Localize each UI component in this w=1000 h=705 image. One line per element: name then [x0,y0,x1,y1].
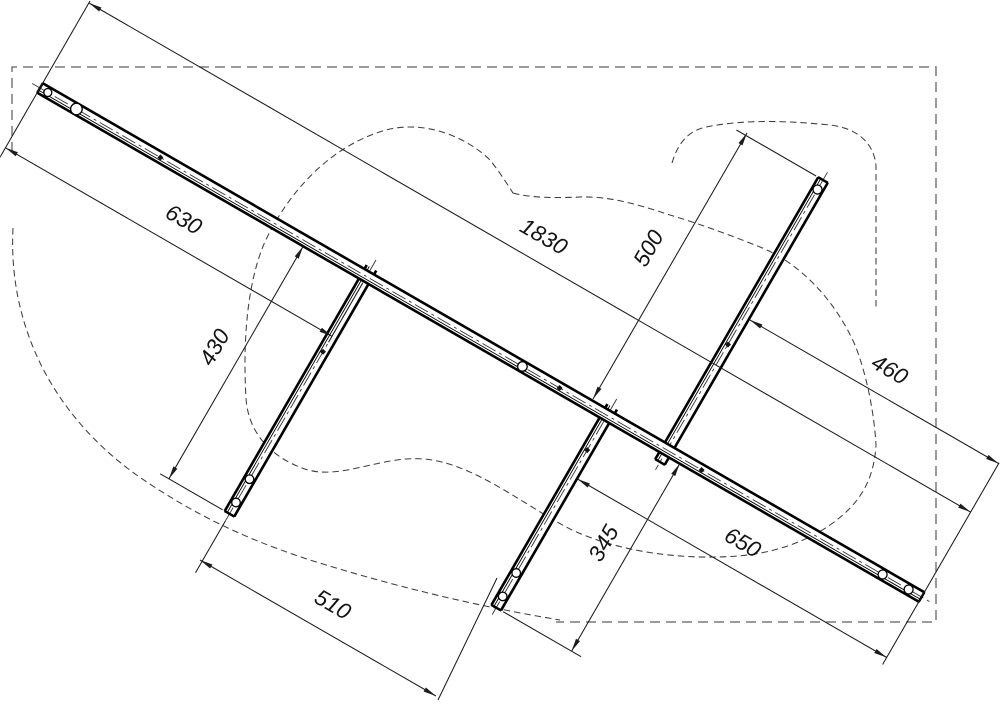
dim-label-d460: 460 [867,349,912,390]
cross-rail-2-edge [501,410,617,611]
cross-rail-1-edge [234,271,376,517]
extension-line [0,1,90,157]
dim-label-d345: 345 [583,520,624,565]
mounting-hole [232,498,241,507]
main-rail-edge [43,83,925,592]
mounting-hole [245,475,254,484]
template-top-right-outline [672,122,876,311]
dimension-arrowhead [578,479,590,487]
dimension-line-d460 [750,320,999,464]
dimension-d460: 460 [750,320,999,464]
dimension-arrowhead [986,455,998,463]
extension-line [438,578,497,700]
main-rail [32,83,929,602]
dimension-d345: 345 [572,464,680,652]
dimension-arrowhead [750,320,762,328]
dimension-arrowhead [295,246,303,258]
dimension-d630: 630 [6,148,333,336]
mounting-hole [518,362,528,372]
dimension-arrowhead [874,649,886,657]
dimension-line-d630 [6,148,333,336]
cross-rail-3-edge [665,183,828,465]
main-rail-edge [37,93,919,602]
mounting-hole [71,103,83,115]
dimension-arrowhead [572,639,580,651]
dimension-line-d345 [572,464,680,652]
dimension-arrowhead [593,387,602,399]
dimension-arrowhead [200,560,212,568]
dim-label-d650: 650 [720,522,765,563]
dimension-d1830: 1830 [89,3,971,512]
mounting-hole [904,585,913,594]
mounting-hole [44,89,52,97]
main-rail-inner-line [39,90,921,599]
extension-line [503,612,581,657]
cross-rail-3-inner-line [658,179,821,461]
dim-label-d500: 500 [628,225,669,270]
technical-drawing: 1830630460650510500430345 [0,0,1000,705]
dimension-arrowhead [169,466,177,478]
mounting-hole [498,592,507,601]
dimension-d650: 650 [578,479,887,658]
dimension-arrowhead [958,504,970,512]
cross-rail-3-edge [655,177,818,459]
dimension-arrowhead [424,688,436,696]
mounting-hole [512,569,521,578]
dim-label-d630: 630 [161,199,206,240]
cross-rail-2 [491,399,617,615]
dim-label-d430: 430 [194,324,235,369]
cross-rail-3 [655,172,828,470]
dim-label-d510: 510 [310,584,355,625]
cross-rail-2-centerline [492,399,617,615]
extension-line [883,463,1000,665]
cross-rail-2-edge [491,404,607,605]
mounting-hole [878,570,887,579]
cross-rail-1-edge [225,265,367,511]
dim-label-d1830: 1830 [516,213,572,260]
dimension-arrowhead [738,133,747,145]
dimension-arrowhead [89,3,101,11]
dimension-d510: 510 [200,560,436,696]
extension-line [329,283,363,342]
drawing-canvas: 1830630460650510500430345 [0,0,1000,705]
dimension-line-d510 [200,560,436,696]
cross-rail-2-inner-line [494,405,610,606]
dimension-arrowhead [671,464,679,476]
extension-line [736,130,816,176]
dimension-line-d1830 [89,3,971,512]
mounting-hole [813,185,822,194]
dimension-line-d650 [578,479,887,658]
extension-line [160,474,222,510]
